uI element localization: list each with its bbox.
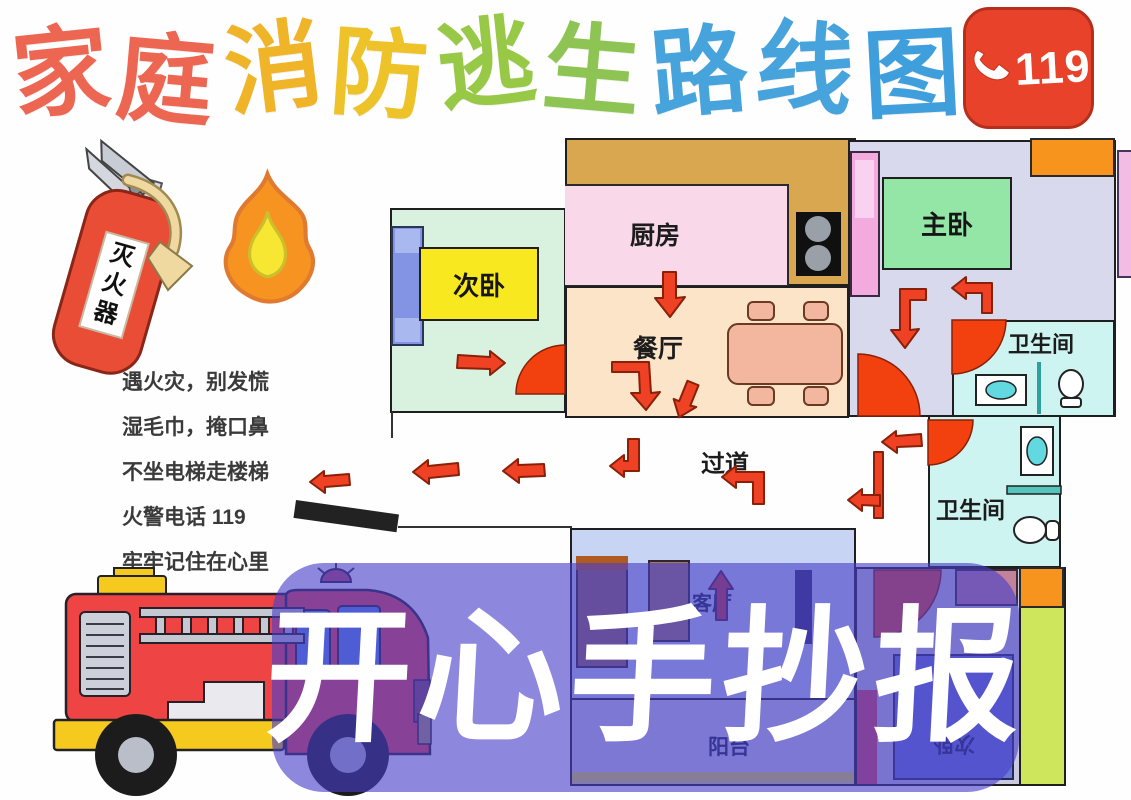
room-label-bathroom-top: 卫生间 <box>1008 327 1074 359</box>
title-char: 庭 <box>113 27 218 132</box>
room-label-corridor: 过道 <box>701 444 749 479</box>
room-label: 次卧 <box>453 266 505 303</box>
flame-icon <box>205 168 330 313</box>
poem-line: 火警电话 119 <box>122 495 342 540</box>
escape-arrow <box>848 489 880 511</box>
title-char: 路 <box>647 19 752 124</box>
title-char: 消 <box>219 14 327 122</box>
phone-handset-icon <box>966 40 1013 96</box>
escape-arrow <box>503 459 545 483</box>
page-title: 家庭消防逃生路线图 <box>8 0 964 132</box>
poem-line: 不坐电梯走楼梯 <box>122 450 342 495</box>
svg-text:火: 火 <box>99 268 130 301</box>
room-label-bathroom-mid: 卫生间 <box>936 491 1005 525</box>
title-char: 线 <box>752 15 859 122</box>
title-char: 家 <box>8 19 115 126</box>
escape-arrow <box>413 460 459 484</box>
bed-pillow <box>395 229 420 253</box>
escape-arrow-tail <box>874 452 883 518</box>
shutter-lines <box>86 624 124 689</box>
poem-line: 遇火灾，别发慌 <box>122 360 342 405</box>
title-char: 逃 <box>432 11 539 118</box>
cabinet <box>1030 138 1115 177</box>
room-label-kitchen: 厨房 <box>630 216 680 252</box>
safety-poem: 遇火灾，别发慌 湿毛巾，掩口鼻 不坐电梯走楼梯 火警电话 119 牢牢记住在心里 <box>122 360 342 585</box>
title-char: 生 <box>539 17 644 122</box>
watermark-overlay: 开心手抄报 <box>272 563 1019 792</box>
room-label-dining: 餐厅 <box>633 329 683 365</box>
bed-bedroom-left: 次卧 <box>419 247 539 321</box>
escape-arrow <box>882 431 922 453</box>
poster-canvas: 家庭消防逃生路线图 119 灭 火 器 遇火灾，别发慌 湿毛巾，掩口鼻 <box>0 0 1131 800</box>
fire-call-badge: 119 <box>963 7 1094 129</box>
title-char: 图 <box>861 23 963 125</box>
room-dining <box>565 286 849 418</box>
poem-line: 湿毛巾，掩口鼻 <box>122 405 342 450</box>
wall <box>398 526 572 528</box>
watermark-text: 开心手抄报 <box>262 605 1030 751</box>
cabinet-edge <box>1117 150 1131 278</box>
svg-text:器: 器 <box>90 297 122 330</box>
bed-master: 主卧 <box>882 177 1012 270</box>
title-char: 防 <box>327 22 431 126</box>
wheel-icon <box>95 714 177 796</box>
bed-pillow <box>395 318 420 342</box>
badge-number: 119 <box>1014 40 1092 96</box>
svg-text:灭: 灭 <box>107 239 138 272</box>
room-label: 主卧 <box>921 205 973 242</box>
wardrobe-door <box>855 160 874 218</box>
escape-arrow <box>610 439 639 477</box>
fire-extinguisher-illustration: 灭 火 器 <box>10 138 220 393</box>
